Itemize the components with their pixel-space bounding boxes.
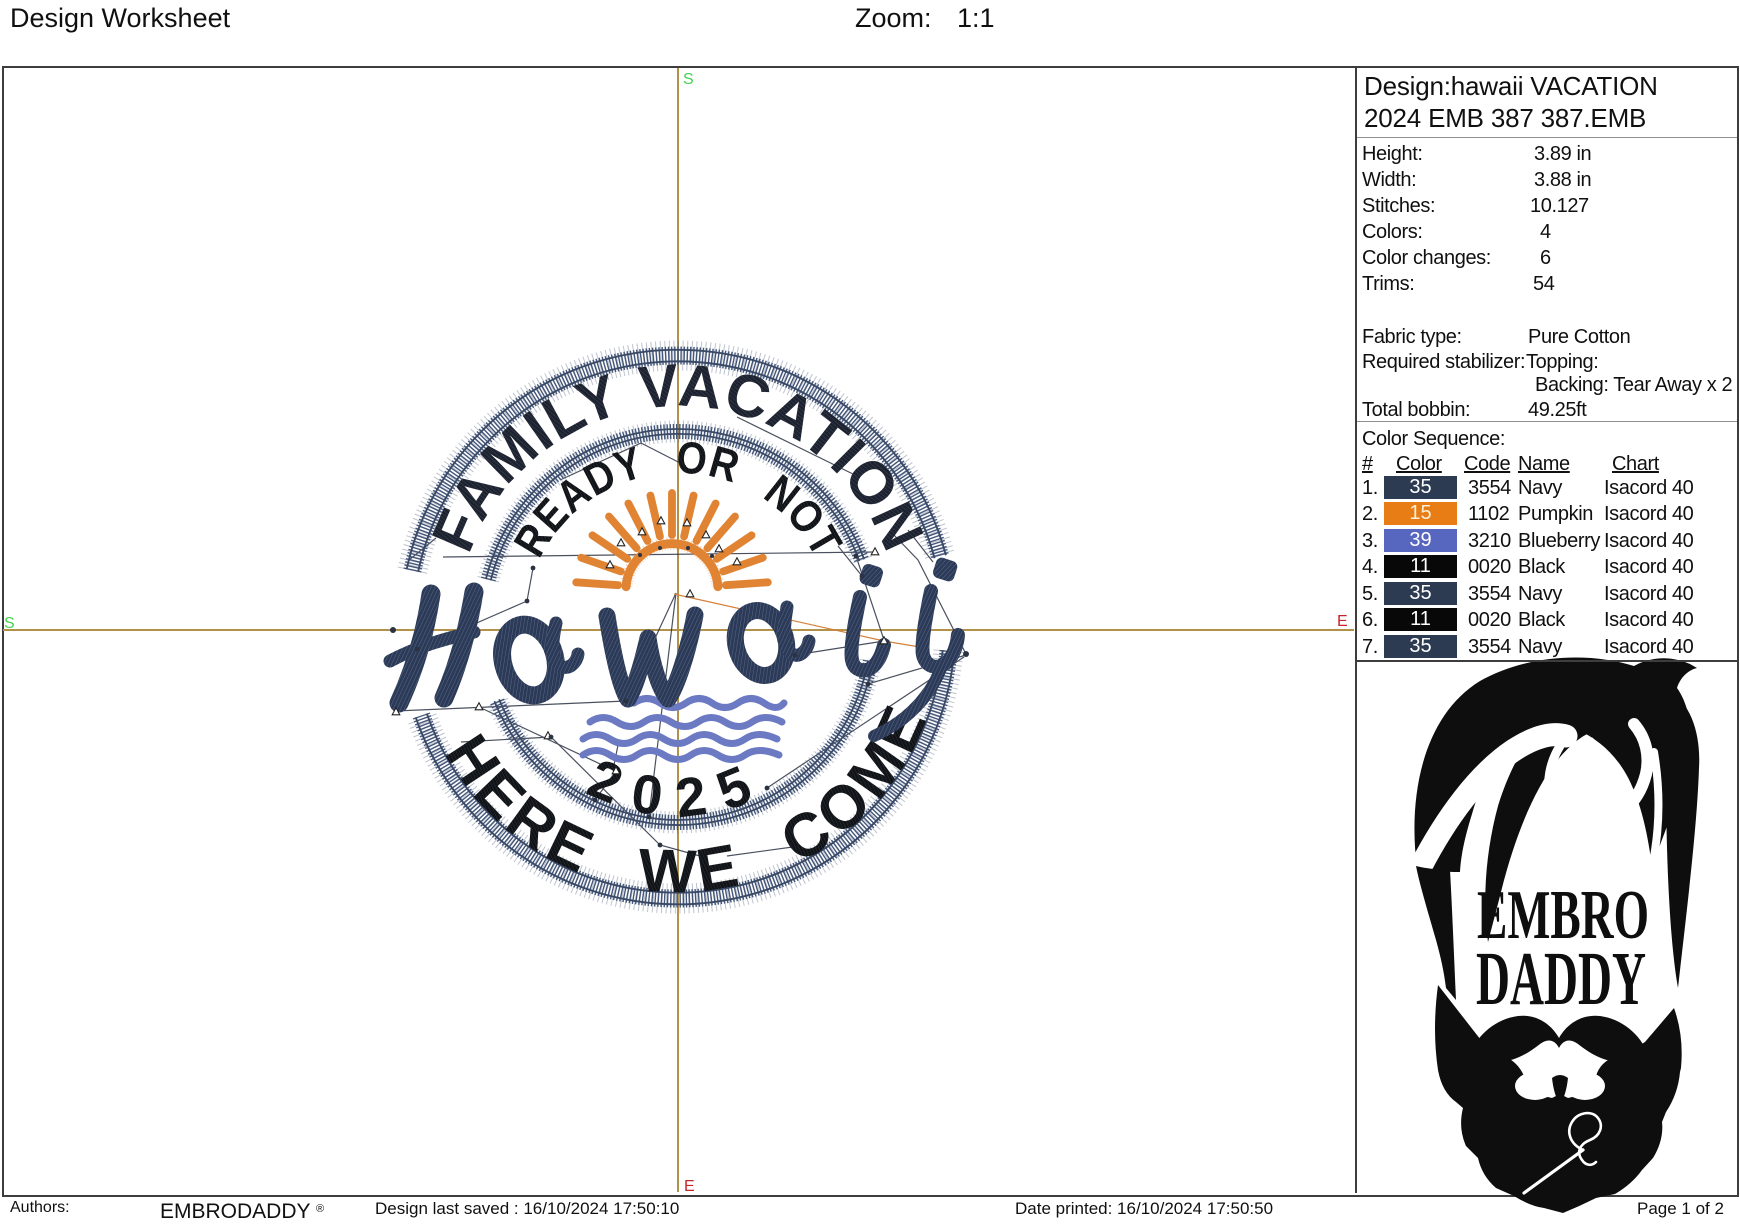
svg-text:S: S — [4, 615, 15, 632]
svg-text:E: E — [1337, 613, 1348, 630]
svg-text:E: E — [684, 1178, 695, 1195]
svg-text:DADDY: DADDY — [1476, 937, 1646, 1021]
svg-text:S: S — [683, 71, 694, 88]
